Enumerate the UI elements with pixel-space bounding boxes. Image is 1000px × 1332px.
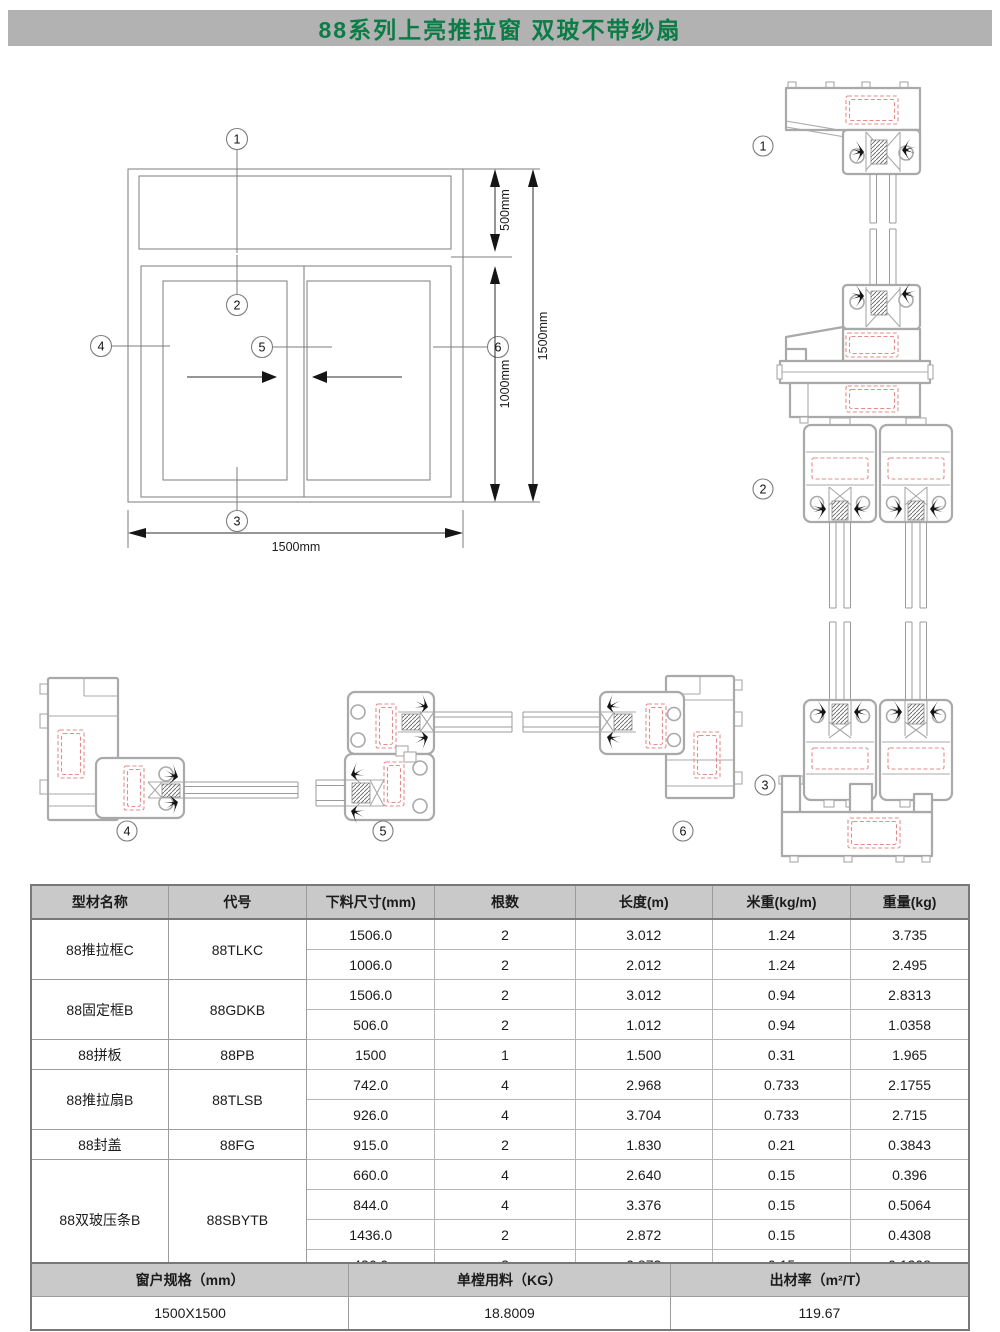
section-detail-3	[779, 700, 952, 862]
cell: 2	[435, 980, 575, 1010]
section-detail-4	[40, 678, 298, 820]
col-header-window-size: 窗户规格（mm）	[31, 1263, 349, 1297]
profile-spec-table: 型材名称 代号 下料尺寸(mm) 根数 长度(m) 米重(kg/m) 重量(kg…	[30, 884, 970, 1281]
section-marker-1: 1	[760, 140, 767, 154]
summary-header-row: 窗户规格（mm） 单樘用料（KG） 出材率（m²/T）	[31, 1263, 969, 1297]
cell: 506.0	[307, 1010, 435, 1040]
cell: 1.24	[712, 950, 850, 980]
spec-header-row: 型材名称 代号 下料尺寸(mm) 根数 长度(m) 米重(kg/m) 重量(kg…	[31, 885, 969, 919]
cell: 4	[435, 1190, 575, 1220]
table-row: 88双玻压条B 88SBYTB 660.0 4 2.640 0.15 0.396	[31, 1160, 969, 1190]
yield-rate-value: 119.67	[670, 1297, 969, 1331]
technical-drawing: 1 2 3 4 5 6 500mm 1000mm 1500mm 1500mm	[0, 56, 1000, 882]
cell: 2.495	[851, 950, 969, 980]
title-band: 88系列上亮推拉窗 双玻不带纱扇	[8, 10, 992, 46]
col-header-kg-per-m: 米重(kg/m)	[712, 885, 850, 919]
cell: 1	[435, 1040, 575, 1070]
cell: 4	[435, 1070, 575, 1100]
table-row: 88固定框B 88GDKB 1506.0 2 3.012 0.94 2.8313	[31, 980, 969, 1010]
profile-name: 88推拉框C	[31, 919, 168, 980]
cell: 4	[435, 1160, 575, 1190]
dimension-lines: 500mm 1000mm 1500mm 1500mm	[128, 169, 550, 554]
dim-label-total-width: 1500mm	[272, 540, 321, 554]
section-marker-6: 6	[680, 825, 687, 839]
summary-value-row: 1500X1500 18.8009 119.67	[31, 1297, 969, 1331]
marker-6: 6	[495, 341, 502, 355]
cell: 2.715	[851, 1100, 969, 1130]
profile-name: 88固定框B	[31, 980, 168, 1040]
section-detail-1	[786, 82, 920, 287]
section-detail-6	[523, 676, 742, 798]
section-marker-4: 4	[124, 825, 131, 839]
section-detail-5	[316, 692, 512, 825]
table-row: 88推拉扇B 88TLSB 742.0 4 2.968 0.733 2.1755	[31, 1070, 969, 1100]
table-row: 88拼板 88PB 1500 1 1.500 0.31 1.965	[31, 1040, 969, 1070]
cell: 1006.0	[307, 950, 435, 980]
cell: 915.0	[307, 1130, 435, 1160]
profile-code: 88FG	[168, 1130, 306, 1160]
cell: 2.1755	[851, 1070, 969, 1100]
profile-code: 88PB	[168, 1040, 306, 1070]
cell: 3.012	[575, 919, 712, 950]
col-header-yield-rate: 出材率（m²/T）	[670, 1263, 969, 1297]
page-title: 88系列上亮推拉窗 双玻不带纱扇	[319, 11, 682, 45]
dim-label-upper: 500mm	[498, 189, 512, 231]
dim-label-lower: 1000mm	[498, 360, 512, 409]
slide-direction-arrows	[187, 371, 402, 383]
window-size-value: 1500X1500	[31, 1297, 349, 1331]
cell: 2	[435, 1130, 575, 1160]
cell: 2	[435, 950, 575, 980]
table-row: 88封盖 88FG 915.0 2 1.830 0.21 0.3843	[31, 1130, 969, 1160]
cell: 0.31	[712, 1040, 850, 1070]
elevation-diagram: 1 2 3 4 5 6 500mm 1000mm 1500mm 1500mm	[91, 129, 551, 555]
cell: 2.012	[575, 950, 712, 980]
col-header-weight: 重量(kg)	[851, 885, 969, 919]
dim-label-total-height: 1500mm	[536, 312, 550, 361]
cell: 2	[435, 1220, 575, 1250]
elevation-markers: 1 2 3 4 5 6	[91, 129, 509, 532]
marker-2: 2	[234, 299, 241, 313]
cell: 0.733	[712, 1100, 850, 1130]
table-row: 88推拉框C 88TLKC 1506.0 2 3.012 1.24 3.735	[31, 919, 969, 950]
cell: 1.500	[575, 1040, 712, 1070]
summary-table: 窗户规格（mm） 单樘用料（KG） 出材率（m²/T） 1500X1500 18…	[30, 1262, 970, 1331]
marker-5: 5	[259, 341, 266, 355]
cell: 2	[435, 919, 575, 950]
cell: 2	[435, 1010, 575, 1040]
cell: 2.968	[575, 1070, 712, 1100]
col-header-material-per-unit: 单樘用料（KG）	[349, 1263, 671, 1297]
cell: 3.735	[851, 919, 969, 950]
cell: 0.15	[712, 1160, 850, 1190]
cell: 4	[435, 1100, 575, 1130]
cell: 0.15	[712, 1220, 850, 1250]
cell: 2.640	[575, 1160, 712, 1190]
cell: 926.0	[307, 1100, 435, 1130]
cell: 1.012	[575, 1010, 712, 1040]
cell: 1.24	[712, 919, 850, 950]
cell: 2.872	[575, 1220, 712, 1250]
spec-sheet-page: { "title": "88系列上亮推拉窗 双玻不带纱扇", "diagram"…	[0, 0, 1000, 1332]
cell: 0.733	[712, 1070, 850, 1100]
cell: 1500	[307, 1040, 435, 1070]
cell: 3.012	[575, 980, 712, 1010]
marker-4: 4	[98, 340, 105, 354]
profile-name: 88推拉扇B	[31, 1070, 168, 1130]
section-marker-5: 5	[380, 825, 387, 839]
col-header-code: 代号	[168, 885, 306, 919]
cell: 0.15	[712, 1190, 850, 1220]
cell: 0.396	[851, 1160, 969, 1190]
cell: 1506.0	[307, 919, 435, 950]
cell: 2.8313	[851, 980, 969, 1010]
col-header-cut-size: 下料尺寸(mm)	[307, 885, 435, 919]
cell: 0.94	[712, 1010, 850, 1040]
cell: 3.376	[575, 1190, 712, 1220]
section-detail-2	[777, 282, 952, 700]
profile-code: 88GDKB	[168, 980, 306, 1040]
material-per-unit-value: 18.8009	[349, 1297, 671, 1331]
profile-code: 88TLKC	[168, 919, 306, 980]
marker-3: 3	[234, 515, 241, 529]
profile-name: 88封盖	[31, 1130, 168, 1160]
profile-name: 88拼板	[31, 1040, 168, 1070]
col-header-name: 型材名称	[31, 885, 168, 919]
cell: 0.21	[712, 1130, 850, 1160]
section-marker-3: 3	[762, 779, 769, 793]
cell: 1436.0	[307, 1220, 435, 1250]
cell: 0.5064	[851, 1190, 969, 1220]
cell: 1.965	[851, 1040, 969, 1070]
cell: 1506.0	[307, 980, 435, 1010]
cell: 1.0358	[851, 1010, 969, 1040]
cell: 742.0	[307, 1070, 435, 1100]
section-marker-2: 2	[760, 483, 767, 497]
cell: 3.704	[575, 1100, 712, 1130]
cell: 1.830	[575, 1130, 712, 1160]
col-header-length: 长度(m)	[575, 885, 712, 919]
cell: 0.94	[712, 980, 850, 1010]
marker-1: 1	[234, 133, 241, 147]
cell: 660.0	[307, 1160, 435, 1190]
cell: 0.3843	[851, 1130, 969, 1160]
cell: 0.4308	[851, 1220, 969, 1250]
cell: 844.0	[307, 1190, 435, 1220]
profile-code: 88TLSB	[168, 1070, 306, 1130]
col-header-count: 根数	[435, 885, 575, 919]
